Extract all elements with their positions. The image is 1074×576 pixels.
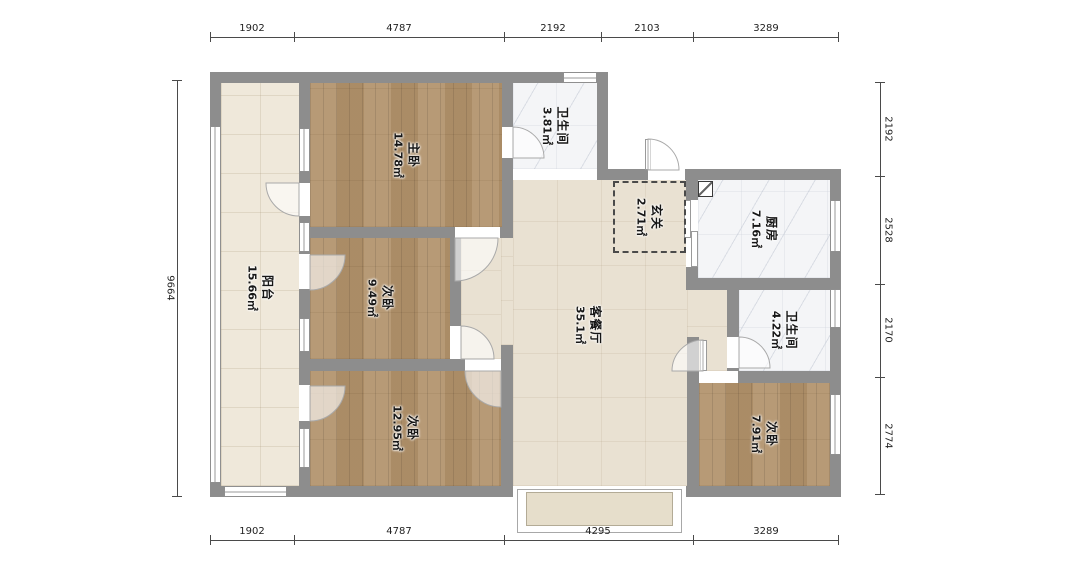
window — [830, 289, 841, 328]
dimension-label: 3289 — [753, 23, 778, 34]
window — [830, 394, 841, 455]
door-opening — [465, 359, 501, 371]
window — [299, 222, 310, 252]
door-opening — [299, 254, 310, 289]
room-floor-hallway — [461, 238, 501, 359]
dimension-label: 2528 — [883, 217, 894, 242]
room-label-bedroom-4: 次卧 7.91㎡ — [750, 415, 779, 453]
room-label-living-dining: 客餐厅 35.1㎡ — [574, 305, 603, 344]
room-label-bathroom-2: 卫生间 4.22㎡ — [770, 310, 799, 349]
dimension-label: 9664 — [165, 275, 176, 300]
dimension-label: 2103 — [634, 23, 659, 34]
wall — [686, 278, 841, 290]
dimension-label: 4787 — [386, 23, 411, 34]
wall — [299, 359, 465, 371]
room-floor-hall-gap — [501, 238, 513, 345]
window — [299, 318, 310, 352]
dimension-label: 3289 — [753, 526, 778, 537]
door-opening — [299, 385, 310, 421]
dimension-label: 1902 — [239, 526, 264, 537]
room-label-bathroom-1: 卫生间 3.81㎡ — [541, 106, 570, 145]
wall — [687, 337, 699, 497]
room-label-kitchen: 厨房 7.16㎡ — [750, 210, 779, 248]
window — [210, 126, 221, 483]
door-opening — [455, 227, 500, 238]
bay-window-sill — [526, 492, 673, 526]
dimension-label: 4295 — [585, 526, 610, 537]
wall — [738, 371, 841, 383]
door-opening — [727, 337, 739, 368]
wall — [597, 72, 608, 180]
sliding-door-leaf — [691, 231, 698, 267]
wall — [502, 83, 513, 238]
room-label-bedroom-2: 次卧 9.49㎡ — [366, 279, 395, 317]
dimension-label: 2192 — [883, 116, 894, 141]
door-opening — [699, 371, 738, 383]
dimension-label: 2774 — [883, 423, 894, 448]
room-label-bedroom-3: 次卧 12.95㎡ — [391, 405, 420, 451]
room-label-entry: 玄关 2.71㎡ — [635, 198, 664, 236]
door-opening — [299, 183, 310, 216]
window — [299, 128, 310, 172]
flue-icon — [698, 181, 713, 197]
dimension-label: 1902 — [239, 23, 264, 34]
window — [299, 428, 310, 468]
room-label-balcony: 阳台 15.66㎡ — [246, 265, 275, 311]
window — [830, 200, 841, 252]
window — [563, 72, 597, 83]
dimension-label: 2170 — [883, 317, 894, 342]
dimension-label: 4787 — [386, 526, 411, 537]
wall — [597, 169, 841, 180]
wall — [727, 278, 739, 337]
entry-door-leaf — [645, 139, 651, 170]
dimension-label: 2192 — [540, 23, 565, 34]
door-opening — [450, 326, 461, 359]
wall — [501, 345, 513, 497]
door-opening — [648, 169, 685, 180]
room-label-master-bedroom: 主卧 14.78㎡ — [392, 132, 421, 178]
floor-plan-canvas: 阳台 15.66㎡ 主卧 14.78㎡ 卫生间 3.81㎡ 玄关 2.71㎡ 厨… — [0, 0, 1074, 576]
door-leaf — [700, 340, 707, 371]
window — [224, 486, 287, 497]
door-opening — [502, 127, 513, 158]
wall — [210, 72, 608, 83]
